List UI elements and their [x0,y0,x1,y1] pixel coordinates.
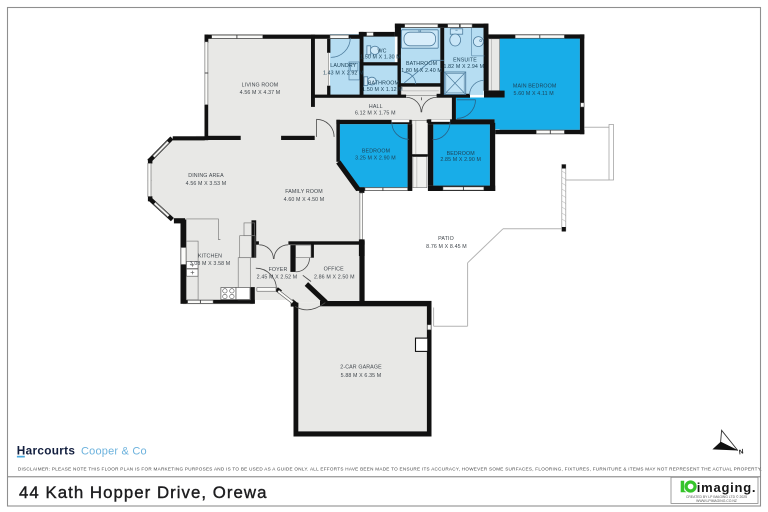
svg-text:DINING AREA: DINING AREA [188,173,224,179]
svg-text:1.50 M X 1.12 M: 1.50 M X 1.12 M [362,87,403,93]
svg-text:6.12 M X 1.75 M: 6.12 M X 1.75 M [355,111,396,117]
svg-text:FAMILY ROOM: FAMILY ROOM [285,189,323,195]
svg-text:44 Kath Hopper Drive, Orewa: 44 Kath Hopper Drive, Orewa [19,483,267,502]
svg-text:1.80 M X 2.40 M: 1.80 M X 2.40 M [401,68,442,74]
svg-text:8.76 M X 8.45 M: 8.76 M X 8.45 M [426,244,467,250]
svg-text:2.45 M X 2.52 M: 2.45 M X 2.52 M [257,275,298,281]
svg-text:HALL: HALL [369,104,383,110]
svg-text:LIVING ROOM: LIVING ROOM [242,83,279,89]
svg-text:2-CAR GARAGE: 2-CAR GARAGE [340,364,382,370]
svg-text:MAIN BEDROOM: MAIN BEDROOM [513,84,557,90]
svg-text:1.43 M X 2.92 M: 1.43 M X 2.92 M [323,70,364,76]
svg-text:FOYER: FOYER [269,267,288,273]
svg-text:BEDROOM: BEDROOM [447,151,475,157]
svg-text:Harcourts: Harcourts [17,444,76,458]
svg-text:ENSUITE: ENSUITE [453,57,477,63]
svg-text:DISCLAIMER: PLEASE NOTE THIS F: DISCLAIMER: PLEASE NOTE THIS FLOOR PLAN … [18,466,762,471]
svg-text:5.60 M X 4.11 M: 5.60 M X 4.11 M [514,91,554,97]
svg-text:1.50 M X 1.30 M: 1.50 M X 1.30 M [360,55,401,61]
svg-text:1.82 M X 2.94 M: 1.82 M X 2.94 M [443,64,484,70]
svg-text:3.25 M X 2.90 M: 3.25 M X 2.90 M [355,156,396,162]
svg-text:5.88 M X 6.35 M: 5.88 M X 6.35 M [341,373,382,379]
svg-text:imaging.: imaging. [697,480,756,495]
svg-text:BEDROOM: BEDROOM [362,149,390,155]
svg-text:BATHROOM: BATHROOM [406,61,437,67]
svg-text:2.85 M X 2.90 M: 2.85 M X 2.90 M [440,157,481,163]
svg-text:2.86 M X 2.50 M: 2.86 M X 2.50 M [314,275,355,281]
svg-text:4.56 M X 4.37 M: 4.56 M X 4.37 M [240,90,281,96]
svg-text:LAUNDRY: LAUNDRY [330,63,356,69]
svg-text:Cooper & Co: Cooper & Co [81,446,147,458]
svg-text:4.56 M X 3.53 M: 4.56 M X 3.53 M [186,181,227,187]
svg-text:OFFICE: OFFICE [324,267,344,273]
svg-text:WWW.LPIMAGING.CO.NZ: WWW.LPIMAGING.CO.NZ [696,499,737,503]
svg-text:KITCHEN: KITCHEN [198,254,222,260]
svg-text:PATIO: PATIO [438,236,454,242]
svg-text:3.08 M X 3.58 M: 3.08 M X 3.58 M [190,261,231,267]
svg-text:BATHROOM: BATHROOM [368,80,399,86]
svg-text:4.60 M X 4.50 M: 4.60 M X 4.50 M [284,197,325,203]
